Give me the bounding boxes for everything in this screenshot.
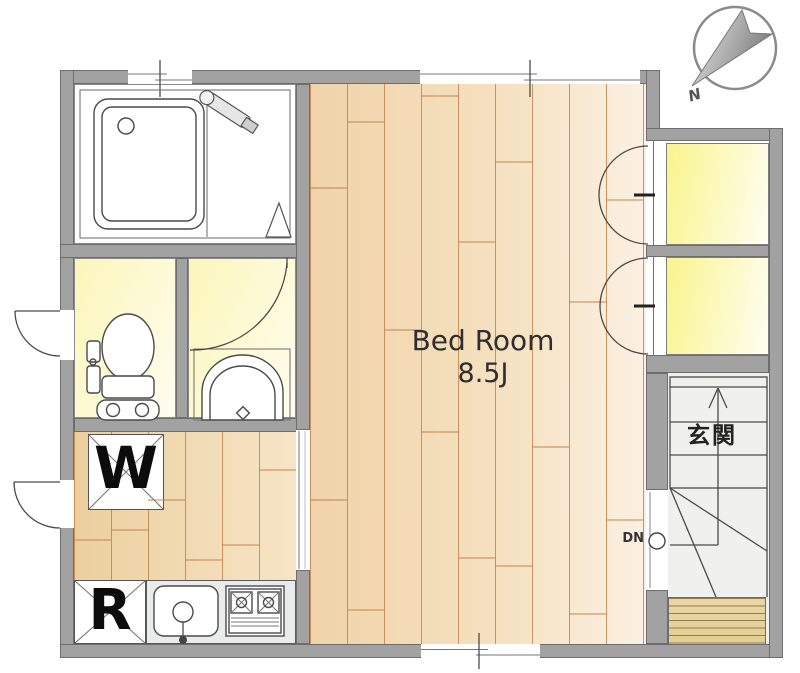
compass-rose xyxy=(692,7,776,89)
wall-segment xyxy=(646,128,783,141)
wall-segment xyxy=(296,84,310,430)
wall-segment xyxy=(296,570,310,644)
washroom-floor xyxy=(188,258,296,418)
hall-door-arc xyxy=(14,482,60,528)
floor-plan-canvas: Bed Room 8.5J 玄関 DN W R N xyxy=(0,0,800,673)
wall-segment xyxy=(769,128,783,658)
bedroom-label: Bed Room xyxy=(383,326,583,355)
compass-north-label: N xyxy=(680,84,710,107)
wall-segment xyxy=(646,245,769,257)
toilet-room-floor xyxy=(74,258,176,418)
north-arrow-icon xyxy=(692,10,772,86)
closet-lower-floor xyxy=(666,257,769,355)
door-opening-bedroom-sliding xyxy=(296,430,310,570)
bathroom-floor xyxy=(74,84,296,244)
stairs-down-label: DN xyxy=(610,532,644,546)
washing-machine-label: W xyxy=(88,438,164,499)
toilet-door-arc xyxy=(15,311,60,356)
wall-segment xyxy=(176,258,188,418)
wall-segment xyxy=(60,70,74,658)
bedroom-size-label: 8.5J xyxy=(383,360,583,388)
entrance-step xyxy=(668,597,766,645)
window xyxy=(420,70,640,84)
door-opening-toilet xyxy=(60,310,74,360)
window xyxy=(421,644,540,658)
wall-segment xyxy=(74,418,310,432)
window xyxy=(128,70,192,84)
door-opening-entrance xyxy=(646,490,668,590)
closet-upper-floor xyxy=(666,143,769,245)
wall-segment xyxy=(60,244,310,258)
door-opening-hall xyxy=(60,480,74,528)
wall-segment xyxy=(646,355,769,373)
kitchen-counter xyxy=(146,580,296,644)
entrance-label: 玄関 xyxy=(664,424,760,448)
refrigerator-label: R xyxy=(74,582,146,641)
wall-segment xyxy=(646,590,668,644)
